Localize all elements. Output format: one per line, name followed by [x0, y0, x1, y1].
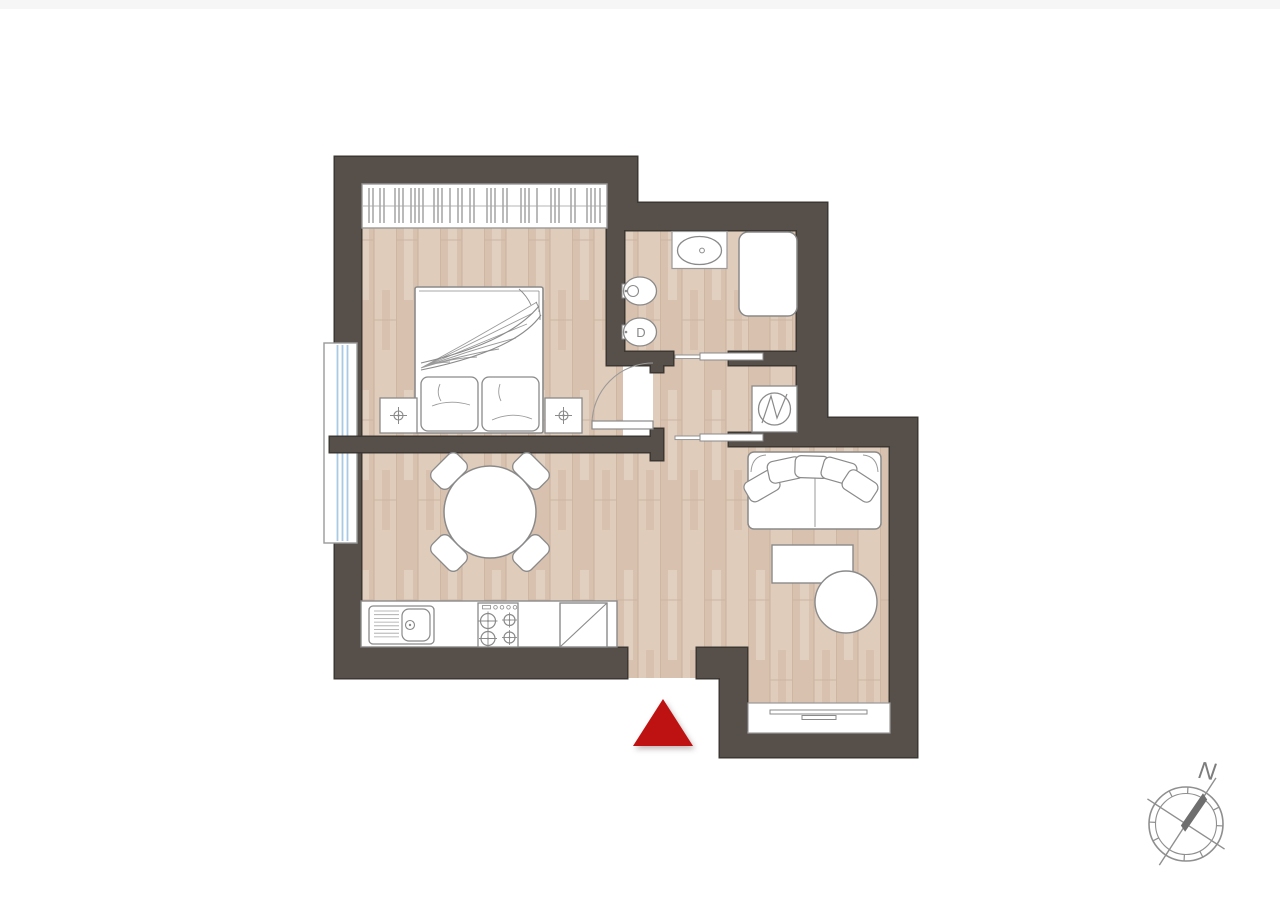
wall-segment [651, 365, 663, 372]
wall-segment [607, 203, 624, 365]
bathroom-sink [672, 232, 727, 269]
wall-segment [720, 648, 747, 733]
pouf-chair [815, 571, 877, 633]
window-bottom [748, 703, 890, 733]
compass-needle [1121, 753, 1255, 890]
washing-machine [752, 386, 797, 432]
floorplan-canvas: D [0, 0, 1280, 905]
double-bed [415, 287, 543, 433]
fridge [560, 603, 607, 647]
entrance-marker [633, 699, 693, 746]
wall-segment [651, 429, 663, 437]
stove [478, 603, 518, 648]
compass-north-label: N [1197, 757, 1219, 786]
floorplan-page: D [0, 0, 1280, 905]
shower [739, 232, 797, 316]
wall-segment [335, 648, 627, 678]
kitchen-sink [369, 606, 434, 644]
wall-segment [720, 731, 917, 757]
sofa [742, 452, 881, 529]
compass-rose: N [1121, 753, 1255, 890]
wardrobe [362, 184, 607, 228]
wall-segment [651, 452, 663, 460]
toilet-letter: D [636, 325, 645, 340]
wall-segment [335, 157, 637, 184]
wall-segment [611, 203, 827, 230]
dining-table [444, 466, 536, 558]
wall-segment [332, 437, 663, 452]
wall-segment [607, 352, 673, 365]
wall-segment [797, 203, 827, 446]
wall-segment [890, 418, 917, 757]
wall-segment [607, 157, 637, 204]
divider-wall-stub [330, 437, 376, 452]
